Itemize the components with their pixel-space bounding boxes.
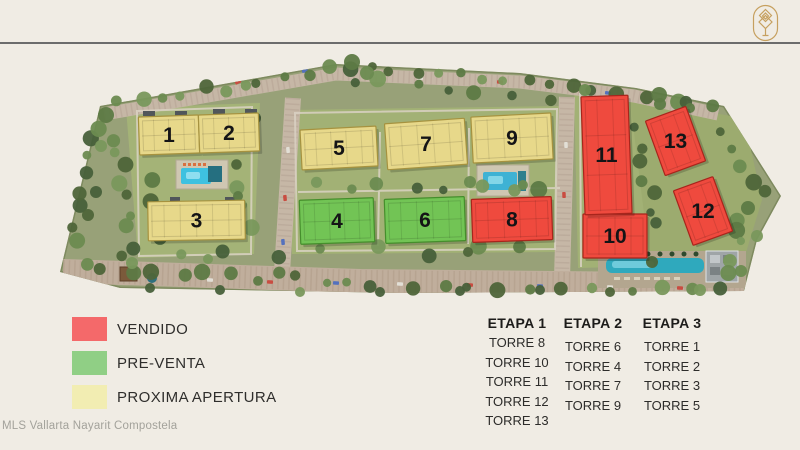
etapa-3-title: ETAPA 3 xyxy=(617,315,727,331)
tower-number-8: 8 xyxy=(506,209,518,232)
legend-label: PROXIMA APERTURA xyxy=(117,389,277,406)
etapa-3-row: TORRE 5 xyxy=(617,396,727,416)
etapa-3-row: TORRE 3 xyxy=(617,376,727,396)
legend-swatch-vendido xyxy=(72,317,107,341)
tower-number-7: 7 xyxy=(420,133,432,156)
pool-left xyxy=(176,160,228,189)
tower-number-6: 6 xyxy=(419,209,431,232)
tower-number-9: 9 xyxy=(506,127,518,150)
legend-swatch-pre-venta xyxy=(72,351,107,375)
legend-label: VENDIDO xyxy=(117,321,188,338)
tower-number-10: 10 xyxy=(603,225,626,248)
watermark: MLS Vallarta Nayarit Compostela xyxy=(2,420,177,432)
brand-logo-icon xyxy=(752,4,779,42)
tower-number-11: 11 xyxy=(595,144,618,167)
tower-number-13: 13 xyxy=(664,130,687,153)
tower-number-5: 5 xyxy=(333,137,345,160)
legend-swatch-proxima-apertura xyxy=(72,385,107,409)
tower-number-3: 3 xyxy=(191,210,203,233)
tower-number-1: 1 xyxy=(163,124,175,147)
etapa-column-3: ETAPA 3 TORRE 1 TORRE 2 TORRE 3 TORRE 5 xyxy=(617,315,727,415)
legend-label: PRE-VENTA xyxy=(117,355,205,372)
etapa-3-row: TORRE 2 xyxy=(617,357,727,377)
etapa-3-row: TORRE 1 xyxy=(617,337,727,357)
tower-number-2: 2 xyxy=(223,122,235,145)
tower-number-12: 12 xyxy=(691,200,714,223)
tower-number-4: 4 xyxy=(331,210,343,233)
slide: 12345678910111213 VENDIDO PRE-VENTA PROX… xyxy=(0,0,800,450)
legend-item-pre-venta: PRE-VENTA xyxy=(72,351,277,375)
legend-item-vendido: VENDIDO xyxy=(72,317,277,341)
legend: VENDIDO PRE-VENTA PROXIMA APERTURA xyxy=(72,317,277,419)
legend-item-proxima-apertura: PROXIMA APERTURA xyxy=(72,385,277,409)
header-divider xyxy=(0,42,800,44)
